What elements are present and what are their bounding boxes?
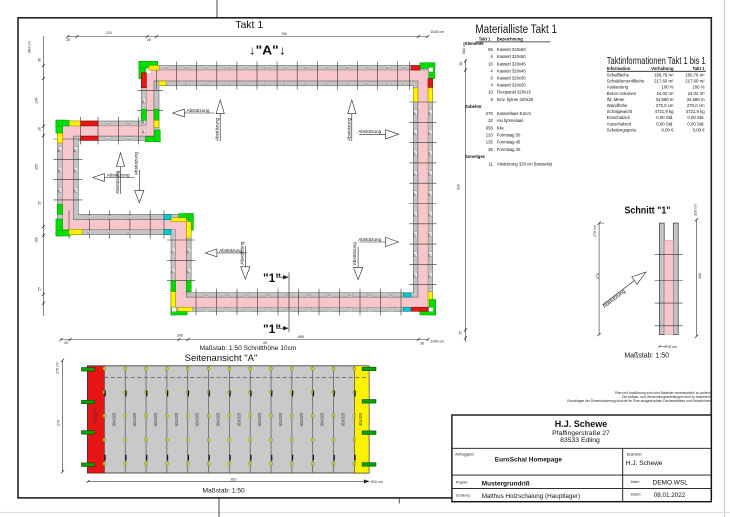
svg-text:0,00 Std.: 0,00 Std. (656, 115, 673, 120)
svg-text:60: 60 (265, 82, 269, 86)
svg-text:lfd. Meter: lfd. Meter (607, 97, 625, 102)
svg-text:60: 60 (307, 308, 311, 312)
svg-text:217,60 m²: 217,60 m² (685, 79, 705, 84)
svg-text:86: 86 (488, 47, 493, 52)
svg-text:134: 134 (35, 98, 39, 104)
svg-text:Formstag 45: Formstag 45 (497, 140, 521, 145)
svg-text:60: 60 (185, 66, 189, 70)
svg-text:100 %: 100 % (661, 85, 673, 90)
svg-text:60: 60 (427, 111, 431, 115)
svg-text:60: 60 (413, 233, 417, 237)
svg-text:Abstützung: Abstützung (215, 117, 220, 140)
svg-text:60: 60 (286, 82, 290, 86)
svg-text:Maßstab: 1:50: Maßstab: 1:50 (624, 352, 669, 359)
svg-text:34,580 m: 34,580 m (656, 97, 674, 102)
svg-text:270 cm: 270 cm (55, 362, 59, 374)
svg-text:210: 210 (106, 31, 112, 35)
svg-text:306: 306 (177, 333, 183, 337)
svg-text:60: 60 (87, 216, 91, 220)
svg-text:1045 cm: 1045 cm (431, 339, 445, 343)
svg-text:Kassett 320x20: Kassett 320x20 (497, 83, 527, 88)
svg-text:DEMO.WSL: DEMO.WSL (653, 480, 689, 487)
svg-text:Materialliste Takt 1: Materialliste Takt 1 (475, 24, 557, 36)
svg-text:60: 60 (205, 66, 209, 70)
svg-text:60: 60 (346, 66, 350, 70)
svg-text:60: 60 (141, 130, 145, 134)
svg-text:60: 60 (326, 66, 330, 70)
svg-text:60: 60 (127, 231, 131, 235)
svg-text:60: 60 (307, 293, 311, 297)
svg-text:810 cm: 810 cm (371, 480, 383, 484)
svg-text:60: 60 (265, 66, 269, 70)
svg-text:60: 60 (389, 308, 393, 312)
svg-text:60: 60 (306, 82, 310, 86)
svg-text:60: 60 (57, 189, 61, 193)
svg-text:EuroSchal Homepage: EuroSchal Homepage (495, 456, 563, 463)
svg-text:60: 60 (346, 82, 350, 86)
svg-text:60x320: 60x320 (340, 412, 345, 426)
svg-text:10: 10 (488, 61, 493, 66)
svg-text:165: 165 (35, 237, 39, 243)
svg-text:217,60 m²: 217,60 m² (654, 79, 674, 84)
svg-text:Formstag 40: Formstag 40 (497, 147, 521, 152)
svg-text:0,00 €: 0,00 € (662, 127, 675, 132)
svg-text:25: 25 (64, 341, 68, 345)
svg-text:60: 60 (205, 82, 209, 86)
svg-text:60: 60 (205, 308, 209, 312)
svg-text:255: 255 (35, 164, 39, 170)
svg-text:Formstag 50: Formstag 50 (497, 133, 521, 138)
svg-text:60: 60 (87, 231, 91, 235)
svg-text:60: 60 (306, 66, 310, 70)
svg-text:Schalungspreis: Schalungspreis (607, 127, 636, 132)
svg-text:Kassett 320x45: Kassett 320x45 (497, 61, 527, 66)
svg-text:60: 60 (141, 100, 145, 104)
svg-text:Abstützung: Abstützung (107, 173, 130, 178)
svg-text:60x320: 60x320 (111, 412, 116, 426)
svg-text:60: 60 (287, 308, 291, 312)
svg-text:60: 60 (286, 66, 290, 70)
svg-text:Flexipanel 320x15: Flexipanel 320x15 (497, 90, 532, 95)
svg-text:Innv. hjörne 320x25: Innv. hjörne 320x25 (497, 97, 534, 102)
svg-text:276: 276 (486, 111, 494, 116)
svg-text:24,02 m³: 24,02 m³ (657, 91, 675, 96)
svg-text:Abstützung: Abstützung (352, 242, 357, 265)
svg-text:0,00 Std.: 0,00 Std. (687, 121, 704, 126)
svg-text:Abstützung: Abstützung (187, 108, 210, 113)
svg-text:60: 60 (107, 122, 111, 126)
svg-text:60: 60 (427, 172, 431, 176)
svg-text:60: 60 (170, 270, 174, 274)
svg-text:60: 60 (225, 66, 229, 70)
svg-text:25: 25 (38, 287, 42, 291)
svg-text:60x320: 60x320 (153, 412, 158, 426)
svg-text:60: 60 (186, 270, 190, 274)
svg-text:"1": "1" (263, 273, 281, 285)
svg-text:60: 60 (348, 308, 352, 312)
svg-text:34,580 m: 34,580 m (687, 97, 705, 102)
svg-text:60: 60 (369, 293, 373, 297)
svg-text:60x320: 60x320 (236, 412, 241, 426)
svg-text:Vorhaltung: Vorhaltung (651, 66, 674, 71)
svg-text:60x320: 60x320 (257, 412, 262, 426)
svg-text:60: 60 (73, 189, 77, 193)
svg-text:40x320: 40x320 (358, 412, 363, 426)
svg-text:26: 26 (38, 127, 42, 131)
svg-text:Kassett 320x40: Kassett 320x40 (497, 68, 527, 73)
svg-text:60: 60 (127, 122, 131, 126)
svg-text:60: 60 (413, 172, 417, 176)
svg-text:Maßstab: 1:50 Schnitthöhe: Maßstab: 1:50 Schnitthöhe 10cm (200, 345, 297, 352)
svg-text:60x320: 60x320 (132, 412, 137, 426)
svg-text:Pfaffingerstraße 27: Pfaffingerstraße 27 (552, 430, 610, 437)
svg-text:Auftraggeber: Auftraggeber (455, 452, 475, 456)
svg-text:60: 60 (73, 169, 77, 173)
svg-text:0,00 Std.: 0,00 Std. (687, 115, 704, 120)
svg-text:60: 60 (328, 308, 332, 312)
svg-text:760: 760 (281, 32, 287, 36)
svg-text:60: 60 (165, 66, 169, 70)
svg-text:60: 60 (427, 193, 431, 197)
svg-text:Beton-Volumen: Beton-Volumen (607, 91, 637, 96)
svg-text:60: 60 (427, 253, 431, 257)
svg-text:25: 25 (38, 201, 42, 205)
svg-text:60: 60 (205, 293, 209, 297)
svg-text:685: 685 (298, 335, 304, 339)
svg-text:25: 25 (66, 38, 70, 42)
svg-text:Schnitt "1": Schnitt "1" (625, 206, 671, 217)
svg-text:Zubehör: Zubehör (465, 104, 482, 109)
svg-text:60: 60 (413, 152, 417, 156)
svg-text:"1": "1" (263, 324, 281, 336)
svg-text:135: 135 (486, 140, 494, 145)
svg-text:60x320: 60x320 (174, 412, 179, 426)
svg-text:60: 60 (413, 111, 417, 115)
svg-text:Elemente: Elemente (465, 41, 484, 46)
svg-text:810: 810 (231, 477, 237, 481)
svg-text:60: 60 (427, 213, 431, 217)
svg-text:Information: Information (607, 66, 631, 71)
svg-text:60: 60 (366, 82, 370, 86)
svg-text:Schalfläche: Schalfläche (607, 73, 630, 78)
svg-text:H.J. Schewe: H.J. Schewe (626, 460, 663, 467)
svg-text:Abstützung: Abstützung (358, 237, 381, 242)
svg-text:35: 35 (488, 147, 493, 152)
svg-text:24,02 m³: 24,02 m³ (688, 91, 706, 96)
svg-text:Abstützung: Abstützung (133, 152, 138, 175)
svg-text:60: 60 (246, 308, 250, 312)
svg-text:Einschalzeit: Einschalzeit (607, 115, 631, 120)
svg-text:60: 60 (366, 66, 370, 70)
svg-text:180,76 m²: 180,76 m² (654, 73, 674, 78)
svg-text:Seitenansicht "A": Seitenansicht "A" (185, 353, 258, 364)
svg-text:60: 60 (127, 137, 131, 141)
svg-text:60: 60 (246, 293, 250, 297)
svg-text:270,0 cm: 270,0 cm (687, 103, 705, 108)
svg-text:83533 Edling: 83533 Edling (560, 437, 600, 444)
svg-text:270: 270 (596, 273, 600, 279)
svg-text:Schalgewicht: Schalgewicht (607, 109, 633, 114)
svg-text:60: 60 (326, 82, 330, 86)
svg-text:Takt 1: Takt 1 (692, 66, 705, 71)
svg-text:320 cm: 320 cm (693, 204, 697, 216)
svg-text:60: 60 (348, 293, 352, 297)
svg-text:684 cm: 684 cm (28, 41, 32, 53)
svg-text:Wandhöhe: Wandhöhe (607, 103, 628, 108)
svg-text:26: 26 (147, 38, 151, 42)
svg-text:60: 60 (57, 148, 61, 152)
svg-text:60: 60 (369, 308, 373, 312)
svg-text:60: 60 (287, 293, 291, 297)
svg-text:60: 60 (225, 308, 229, 312)
svg-text:Kile: Kile (497, 125, 505, 130)
svg-text:↓"A"↓: ↓"A"↓ (249, 44, 286, 58)
svg-text:H.J. Schewe: H.J. Schewe (555, 419, 608, 429)
svg-text:60: 60 (386, 82, 390, 86)
svg-text:60x320: 60x320 (278, 412, 283, 426)
svg-text:60: 60 (389, 293, 393, 297)
svg-text:60: 60 (413, 213, 417, 217)
svg-text:Bearbeiter: Bearbeiter (627, 452, 643, 456)
svg-text:60: 60 (402, 66, 406, 70)
svg-text:60: 60 (225, 293, 229, 297)
svg-text:60x320: 60x320 (216, 412, 221, 426)
svg-text:60x320: 60x320 (320, 412, 325, 426)
svg-text:Bezeichnung: Bezeichnung (497, 36, 523, 41)
svg-text:Datum:: Datum: (631, 493, 642, 497)
svg-text:08.01.2022: 08.01.2022 (654, 492, 686, 499)
svg-text:60: 60 (427, 132, 431, 136)
svg-text:Grundlagen der Dimensionierung: Grundlagen der Dimensionierung sind die … (567, 399, 711, 403)
svg-text:60: 60 (266, 308, 270, 312)
svg-text:60: 60 (386, 66, 390, 70)
svg-text:270: 270 (56, 420, 60, 426)
svg-text:270 cm: 270 cm (593, 225, 597, 237)
svg-text:36: 36 (459, 62, 463, 66)
svg-text:656: 656 (486, 125, 494, 130)
svg-text:60: 60 (427, 274, 431, 278)
svg-text:Datei:: Datei: (631, 480, 640, 484)
svg-text:60: 60 (402, 82, 406, 86)
svg-text:Schalelementfläche: Schalelementfläche (607, 79, 645, 84)
svg-text:60: 60 (245, 66, 249, 70)
svg-text:320: 320 (698, 273, 702, 279)
svg-text:60: 60 (225, 82, 229, 86)
svg-text:60: 60 (57, 169, 61, 173)
svg-text:Kassettlaas 8,5cm: Kassettlaas 8,5cm (497, 111, 532, 116)
svg-text:0,00 Std.: 0,00 Std. (656, 121, 673, 126)
svg-text:25: 25 (459, 331, 463, 335)
svg-text:60: 60 (413, 193, 417, 197)
svg-text:60: 60 (427, 152, 431, 156)
svg-text:60: 60 (107, 231, 111, 235)
svg-text:32: 32 (488, 118, 493, 123)
svg-text:Ausschalzeit: Ausschalzeit (607, 121, 632, 126)
svg-text:Mustergrundriß: Mustergrundriß (482, 480, 530, 487)
svg-text:60: 60 (413, 253, 417, 257)
svg-text:60: 60 (107, 216, 111, 220)
svg-text:36: 36 (420, 342, 424, 346)
svg-text:25 cm: 25 cm (668, 345, 677, 349)
svg-text:Schalung: Schalung (456, 493, 470, 497)
svg-text:Takt 1: Takt 1 (235, 19, 263, 31)
svg-text:Kassett 320x30: Kassett 320x30 (497, 76, 527, 81)
svg-text:4721,9 kg: 4721,9 kg (655, 109, 674, 114)
svg-text:Abstützung: Abstützung (358, 129, 381, 134)
svg-text:Alu hjörnelaas: Alu hjörnelaas (497, 118, 524, 123)
svg-text:629: 629 (457, 184, 461, 190)
svg-text:60: 60 (186, 250, 190, 254)
svg-text:4721,9 kg: 4721,9 kg (686, 109, 705, 114)
svg-text:11: 11 (488, 161, 493, 166)
svg-text:60: 60 (73, 148, 77, 152)
svg-text:60: 60 (185, 82, 189, 86)
svg-text:120: 120 (486, 133, 494, 138)
svg-text:10: 10 (488, 90, 493, 95)
svg-text:60: 60 (170, 250, 174, 254)
svg-text:180,76 m²: 180,76 m² (685, 73, 705, 78)
svg-text:60: 60 (266, 293, 270, 297)
svg-text:Auslastung: Auslastung (607, 85, 629, 90)
svg-text:60: 60 (107, 137, 111, 141)
svg-text:36: 36 (38, 58, 42, 62)
svg-text:Kassett 320x50: Kassett 320x50 (497, 54, 527, 59)
svg-text:60: 60 (427, 233, 431, 237)
svg-text:60: 60 (328, 293, 332, 297)
svg-text:100 %: 100 % (692, 85, 704, 90)
svg-text:0,00 €: 0,00 € (693, 127, 706, 132)
svg-text:270,0 cm: 270,0 cm (656, 103, 674, 108)
svg-text:60: 60 (413, 132, 417, 136)
svg-text:Maßstab: 1:50: Maßstab: 1:50 (203, 487, 245, 494)
svg-text:60: 60 (127, 216, 131, 220)
svg-text:Abstützung: Abstützung (346, 117, 351, 140)
svg-text:Malthus Holzschalung (Hauptlag: Malthus Holzschalung (Hauptlager) (482, 493, 580, 500)
svg-text:Abstützung: Abstützung (239, 241, 244, 264)
svg-text:Kassett 320x60: Kassett 320x60 (497, 47, 527, 52)
svg-text:Abstützung 320 cm (bauseits): Abstützung 320 cm (bauseits) (497, 161, 553, 166)
svg-text:60x320: 60x320 (195, 412, 200, 426)
svg-text:1045 cm: 1045 cm (430, 30, 444, 34)
svg-text:60: 60 (413, 274, 417, 278)
svg-text:60x320: 60x320 (299, 412, 304, 426)
svg-text:Sonstiges: Sonstiges (465, 154, 486, 159)
svg-text:60: 60 (245, 82, 249, 86)
svg-text:50x320: 50x320 (92, 409, 97, 423)
svg-text:Projekt:: Projekt: (456, 481, 468, 485)
